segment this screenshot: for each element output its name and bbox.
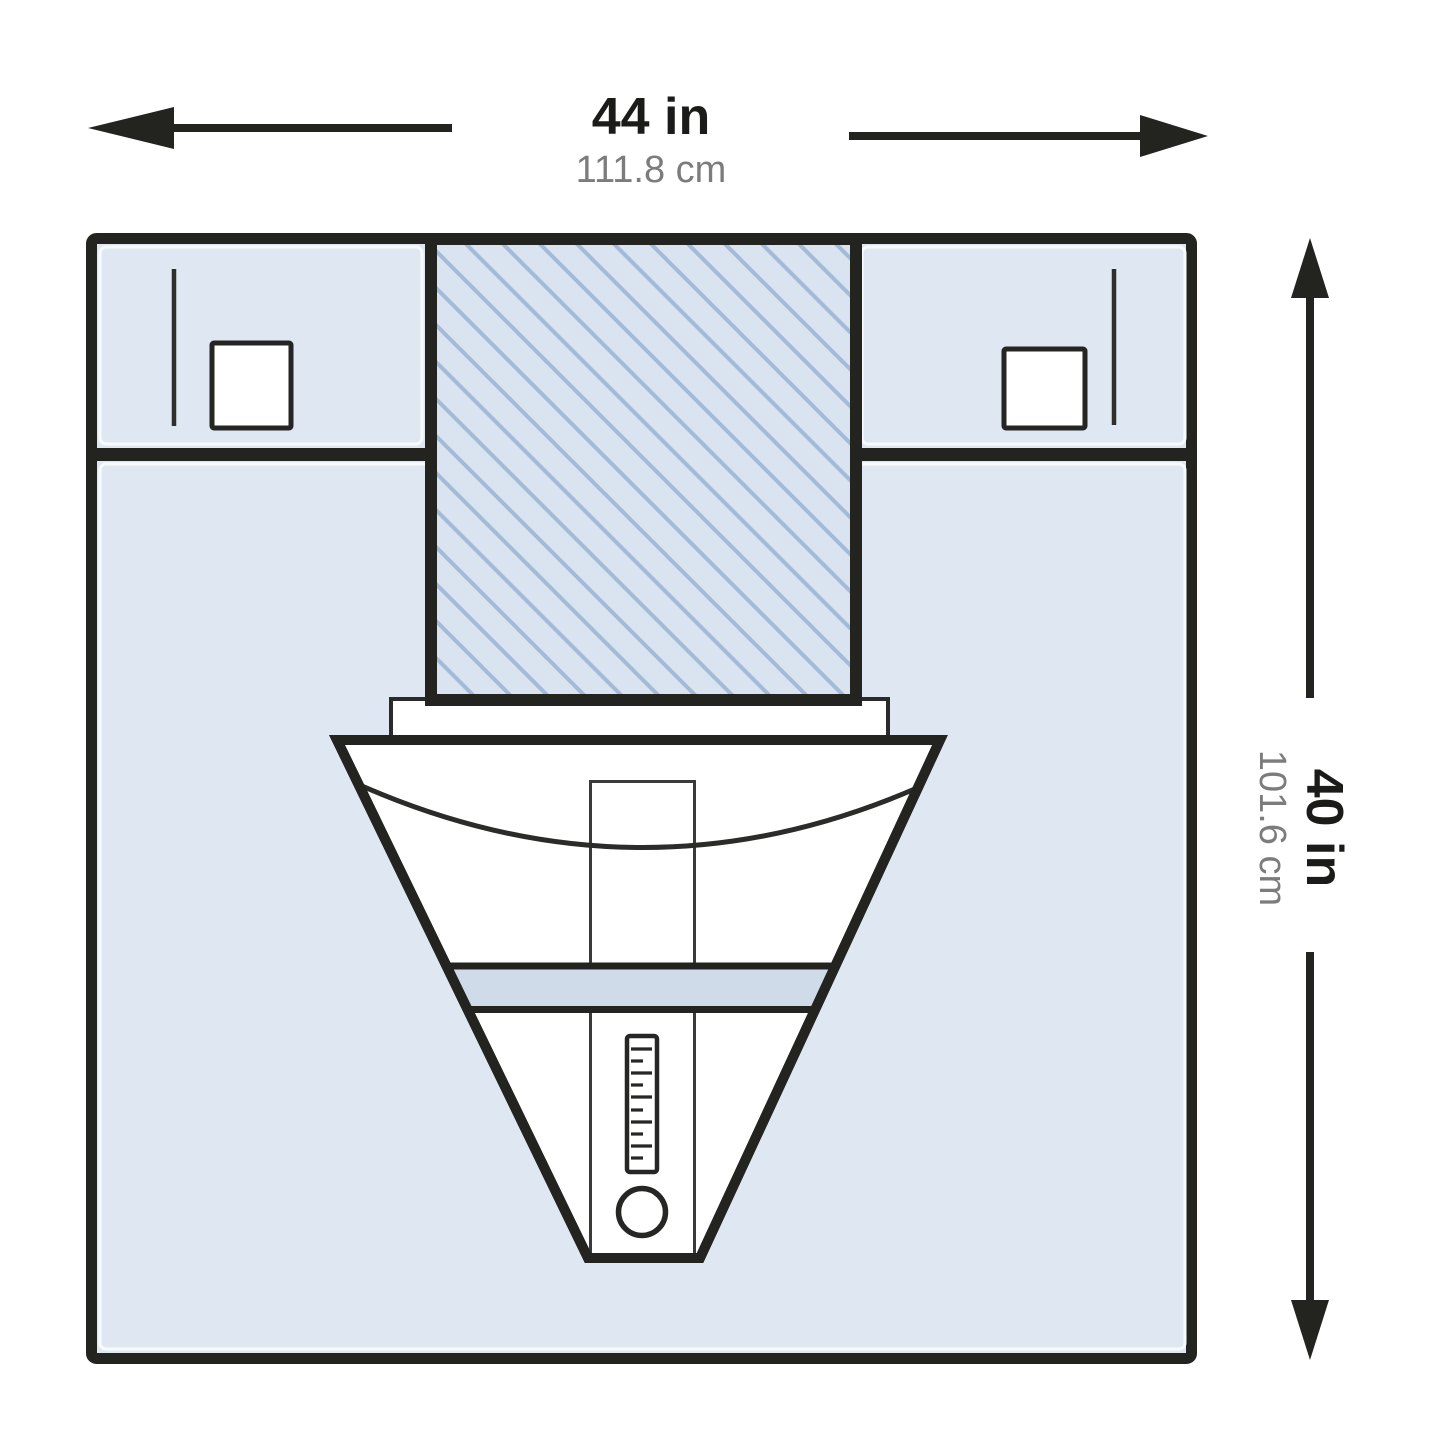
tape-tab-right — [1004, 349, 1085, 428]
height-dimension-imperial: 40 in — [1295, 769, 1353, 888]
pouch-band — [444, 963, 838, 1013]
width-dimension: 44 in 111.8 cm — [88, 88, 1208, 191]
measurement-ruler — [627, 1036, 657, 1172]
height-arrow-up-head — [1291, 238, 1329, 298]
height-arrow-down-head — [1291, 1300, 1329, 1360]
incise-area — [431, 239, 856, 700]
height-dimension: 40 in 101.6 cm — [1251, 238, 1353, 1360]
width-dimension-imperial: 44 in — [592, 88, 711, 146]
surgical-drape-dimension-diagram: 44 in 111.8 cm 40 in 101.6 cm — [0, 0, 1445, 1445]
tape-tab-left — [212, 343, 291, 428]
drape — [92, 239, 1192, 1359]
diagram-svg: 44 in 111.8 cm 40 in 101.6 cm — [0, 0, 1445, 1445]
ruler-body — [627, 1036, 657, 1172]
drain-port — [619, 1189, 666, 1236]
height-dimension-metric: 101.6 cm — [1251, 750, 1293, 906]
width-arrow-right-head — [1140, 115, 1208, 157]
width-arrow-left-head — [88, 107, 174, 149]
width-dimension-metric: 111.8 cm — [576, 149, 727, 191]
